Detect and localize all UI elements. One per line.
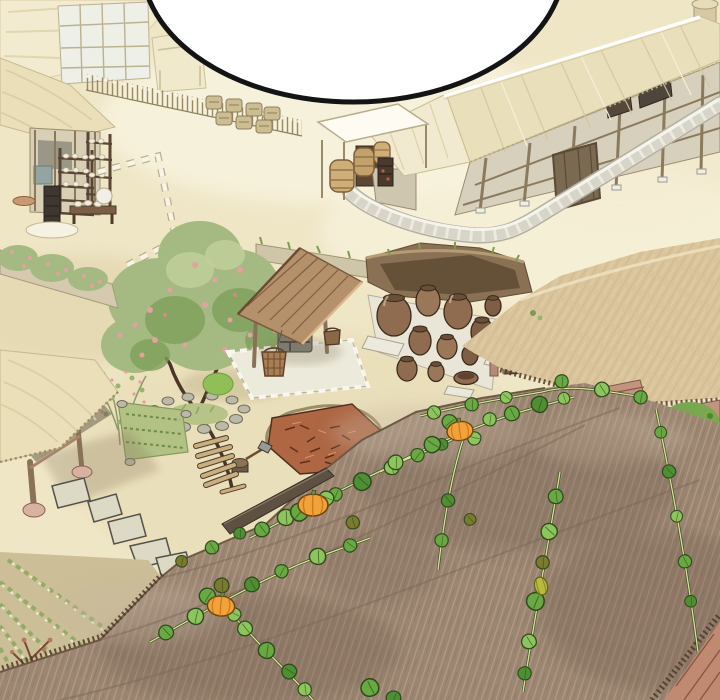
village-scene — [0, 0, 720, 700]
shop-window — [34, 166, 52, 184]
round-white-pot — [96, 188, 112, 204]
straw-mat — [26, 222, 78, 238]
brazier — [378, 158, 393, 186]
clay-bowl — [13, 197, 35, 206]
comic-panel — [0, 0, 720, 700]
bright-bush — [203, 373, 233, 395]
black-cabinet — [44, 186, 60, 224]
